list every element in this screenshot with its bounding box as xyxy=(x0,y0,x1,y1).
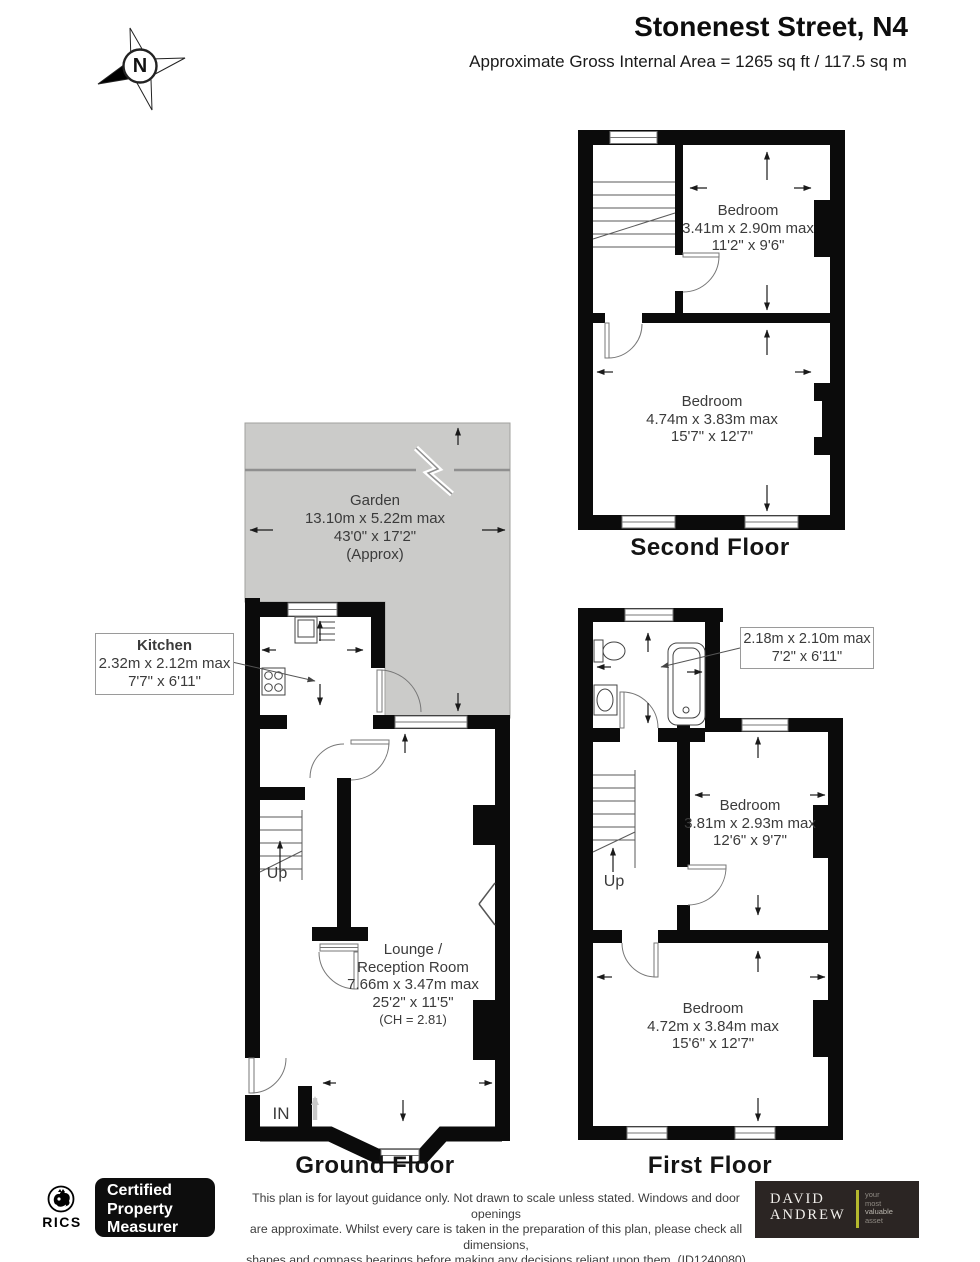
chimney-breast xyxy=(813,1000,828,1057)
second-floor-plan xyxy=(575,125,850,535)
room-metric: 7.66m x 3.47m max xyxy=(347,976,479,994)
david-andrew-logo: DAVID ANDREW your most valuable asset xyxy=(755,1181,919,1238)
floor-label-ground: Ground Floor xyxy=(295,1152,454,1180)
room-label-second-bedroom-front: Bedroom 4.74m x 3.83m max 15'7" x 12'7" xyxy=(646,393,778,446)
chimney-breast xyxy=(814,383,830,401)
walls xyxy=(578,130,845,530)
page-subtitle: Approximate Gross Internal Area = 1265 s… xyxy=(469,52,907,72)
room-imperial: 11'2" x 9'6" xyxy=(682,237,814,255)
kitchen-callout-leader xyxy=(228,655,323,690)
room-label-first-bedroom-middle: Bedroom 3.81m x 2.93m max 12'6" x 9'7" xyxy=(684,797,816,850)
room-metric: 13.10m x 5.22m max xyxy=(305,510,445,528)
room-name: Reception Room xyxy=(347,959,479,977)
garden-door xyxy=(377,670,382,712)
room-name: Garden xyxy=(305,492,445,510)
room-metric: 2.18m x 2.10m max xyxy=(741,630,873,648)
room-label-first-bedroom-front: Bedroom 4.72m x 3.84m max 15'6" x 12'7" xyxy=(647,1000,779,1053)
stairs-up-label-first: Up xyxy=(604,873,624,891)
front-door xyxy=(249,1058,254,1093)
toilet-bowl xyxy=(603,642,625,660)
room-note: (Approx) xyxy=(305,546,445,564)
floor-label-second: Second Floor xyxy=(630,534,789,562)
page-title: Stonenest Street, N4 xyxy=(634,11,908,43)
staircase xyxy=(593,182,675,247)
stairs-up-label-ground: Up xyxy=(267,865,287,883)
room-metric: 2.32m x 2.12m max xyxy=(96,655,233,673)
brand-name: DAVID ANDREW xyxy=(770,1192,846,1223)
room-metric: 3.41m x 2.90m max xyxy=(682,220,814,238)
toilet-cistern xyxy=(594,640,603,662)
room-name: Bedroom xyxy=(647,1000,779,1018)
bathroom-dimensions-callout: 2.18m x 2.10m max 7'2" x 6'11" xyxy=(740,627,874,669)
garden-label: Garden 13.10m x 5.22m max 43'0" x 17'2" … xyxy=(305,492,445,564)
kitchen-dimensions-callout: Kitchen 2.32m x 2.12m max 7'7" x 6'11" xyxy=(95,633,234,695)
ceiling-height: (CH = 2.81) xyxy=(347,1011,479,1029)
brand-accent-bar xyxy=(856,1190,859,1228)
room-name: Lounge / xyxy=(347,941,479,959)
room-imperial: 15'6" x 12'7" xyxy=(647,1035,779,1053)
room-label-lounge: Lounge / Reception Room 7.66m x 3.47m ma… xyxy=(347,941,479,1029)
room-imperial: 43'0" x 17'2" xyxy=(305,528,445,546)
entrance-label: IN xyxy=(273,1104,290,1124)
chimney-breast xyxy=(473,805,495,845)
floorplan-page: Stonenest Street, N4 Approximate Gross I… xyxy=(0,0,980,1262)
room-name: Bedroom xyxy=(684,797,816,815)
certified-property-measurer-badge: Certified Property Measurer xyxy=(95,1178,215,1237)
wall-niche xyxy=(478,881,495,927)
room-metric: 4.72m x 3.84m max xyxy=(647,1018,779,1036)
chimney-breast xyxy=(814,200,830,257)
rics-label: RICS xyxy=(42,1214,81,1230)
room-name: Kitchen xyxy=(96,637,233,655)
room-imperial: 25'2" x 11'5" xyxy=(347,994,479,1012)
floor-label-first: First Floor xyxy=(648,1152,772,1180)
disclaimer-text: This plan is for layout guidance only. N… xyxy=(232,1191,760,1262)
room-label-second-bedroom-rear: Bedroom 3.41m x 2.90m max 11'2" x 9'6" xyxy=(682,202,814,255)
room-metric: 3.81m x 2.93m max xyxy=(684,815,816,833)
room-imperial: 7'7" x 6'11" xyxy=(96,673,233,691)
room-imperial: 12'6" x 9'7" xyxy=(684,832,816,850)
brand-tagline: your most valuable asset xyxy=(865,1191,893,1225)
room-imperial: 15'7" x 12'7" xyxy=(646,428,778,446)
staircase xyxy=(593,770,635,868)
room-metric: 4.74m x 3.83m max xyxy=(646,411,778,429)
bathroom-fixtures xyxy=(594,640,705,725)
room-name: Bedroom xyxy=(646,393,778,411)
rics-crest-icon xyxy=(46,1185,78,1215)
windows xyxy=(610,132,798,529)
compass-north-label: N xyxy=(133,55,147,78)
room-imperial: 7'2" x 6'11" xyxy=(741,648,873,666)
room-name: Bedroom xyxy=(682,202,814,220)
doors xyxy=(605,253,719,358)
